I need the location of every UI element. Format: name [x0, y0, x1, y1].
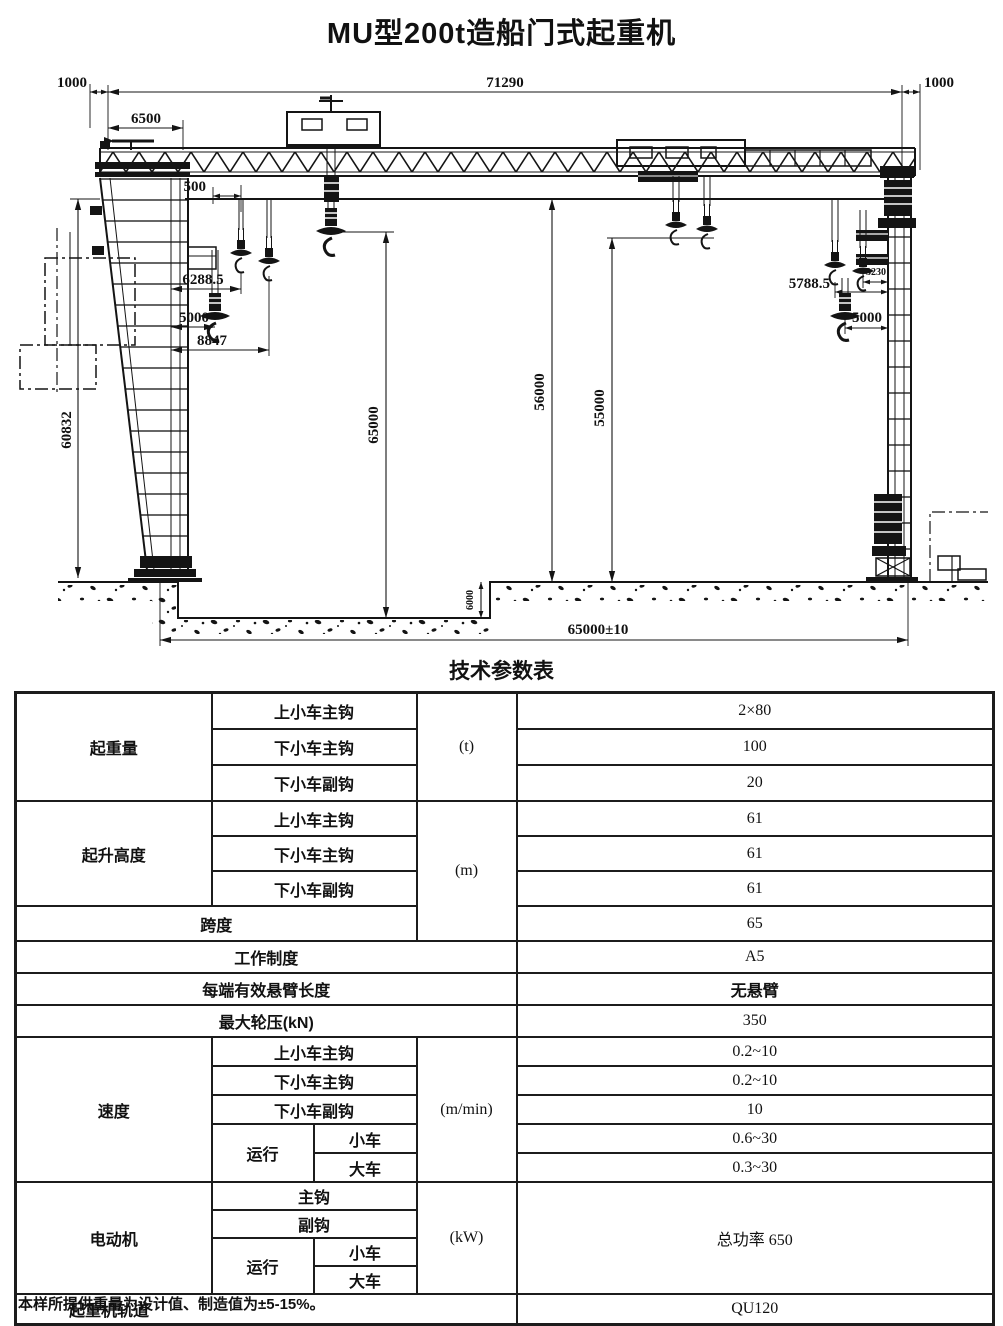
dim-6000: 6000: [465, 590, 476, 610]
cell-motor-unit: (kW): [417, 1182, 517, 1294]
hooks: [200, 176, 874, 340]
dim-3230: 3230: [866, 267, 886, 278]
dim-5000-left: 5000: [179, 310, 209, 326]
ground-and-pit: [58, 512, 988, 634]
leg-platform: [856, 230, 888, 241]
left-hook-2: [258, 236, 280, 281]
left-bogie: [140, 556, 192, 568]
cell-motor-sub-1: 副钩: [212, 1210, 417, 1238]
dim-6288-5: 6288.5: [182, 272, 223, 288]
dim-6500: 6500: [131, 111, 161, 127]
cell-wheelload-label: 最大轮压(kN): [16, 1005, 517, 1037]
cell-rail-value: QU120: [517, 1294, 994, 1325]
cell-height-sub-1: 下小车主钩: [212, 836, 417, 871]
dim-65000: 65000: [366, 406, 382, 444]
cell-speed-travel-value-0: 0.6~30: [517, 1124, 994, 1153]
cell-capacity-sub-2: 下小车副钩: [212, 765, 417, 801]
cell-capacity-label: 起重量: [16, 693, 212, 802]
cell-capacity-value-0: 2×80: [517, 693, 994, 730]
cell-duty-value: A5: [517, 941, 994, 973]
cell-speed-value-1: 0.2~10: [517, 1066, 994, 1095]
upper-trolley: [287, 95, 380, 202]
specs-table: 起重量 上小车主钩 (t) 2×80 下小车主钩 100 下小车副钩 20 起升…: [14, 691, 995, 1326]
footnote: 本样所提供重量为设计值、制造值为±5-15%。: [18, 1293, 325, 1314]
crane-elevation-drawing: 71290 1000 1000 6500 500 6288.5 5000 884…: [0, 0, 1003, 660]
cell-motor-sub-0: 主钩: [212, 1182, 417, 1210]
upper-trolley-main-hook: [316, 200, 346, 255]
cell-motor-travel-sub-0: 小车: [314, 1238, 417, 1266]
dim-500: 500: [184, 179, 207, 195]
cell-speed-sub-1: 下小车主钩: [212, 1066, 417, 1095]
cell-capacity-sub-1: 下小车主钩: [212, 729, 417, 765]
dim-1000-left: 1000: [57, 75, 87, 91]
dim-5788-5: 5788.5: [789, 276, 830, 292]
mid-hook-2: [696, 204, 718, 249]
dim-8847: 8847: [197, 333, 228, 349]
cell-speed-unit: (m/min): [417, 1037, 517, 1182]
cell-span-label: 跨度: [16, 906, 417, 941]
left-leg: [90, 162, 216, 582]
dim-5000-right: 5000: [852, 310, 882, 326]
cell-duty-label: 工作制度: [16, 941, 517, 973]
cell-speed-travel-label: 运行: [212, 1124, 314, 1182]
cell-motor-travel-label: 运行: [212, 1238, 314, 1294]
dim-56000: 56000: [532, 373, 548, 411]
trolley-window: [302, 119, 322, 130]
cell-height-value-2: 61: [517, 871, 994, 906]
cell-height-sub-0: 上小车主钩: [212, 801, 417, 836]
leg-bracket: [90, 206, 102, 215]
right-leg: [856, 166, 918, 582]
cell-cantilever-label: 每端有效悬臂长度: [16, 973, 517, 1005]
cell-capacity-value-2: 20: [517, 765, 994, 801]
cell-height-value-1: 61: [517, 836, 994, 871]
quay-edge: [930, 512, 988, 582]
table-title: 技术参数表: [0, 655, 1003, 685]
cell-capacity-sub-0: 上小车主钩: [212, 693, 417, 730]
leg-bracket: [92, 246, 104, 255]
cell-speed-label: 速度: [16, 1037, 212, 1182]
dim-65000-10: 65000±10: [568, 622, 629, 638]
cell-motor-value: 总功率 650: [517, 1182, 994, 1294]
cell-height-unit: (m): [417, 801, 517, 941]
cell-span-value: 65: [517, 906, 994, 941]
cell-height-label: 起升高度: [16, 801, 212, 906]
cell-speed-sub-0: 上小车主钩: [212, 1037, 417, 1066]
cell-speed-travel-sub-1: 大车: [314, 1153, 417, 1182]
cell-speed-value-0: 0.2~10: [517, 1037, 994, 1066]
dim-60832: 60832: [59, 411, 75, 449]
cell-height-sub-2: 下小车副钩: [212, 871, 417, 906]
cell-wheelload-value: 350: [517, 1005, 994, 1037]
dim-1000-right: 1000: [924, 75, 954, 91]
left-hook-1: [230, 228, 252, 273]
cell-speed-sub-2: 下小车副钩: [212, 1095, 417, 1124]
cell-capacity-unit: (t): [417, 693, 517, 802]
dim-55000: 55000: [592, 389, 608, 427]
truss-girder: [100, 137, 915, 199]
cell-cantilever-value: 无悬臂: [517, 973, 994, 1005]
cell-capacity-value-1: 100: [517, 729, 994, 765]
cell-speed-value-2: 10: [517, 1095, 994, 1124]
cell-motor-label: 电动机: [16, 1182, 212, 1294]
cell-height-value-0: 61: [517, 801, 994, 836]
trolley-window: [347, 119, 367, 130]
cell-motor-travel-sub-1: 大车: [314, 1266, 417, 1294]
cell-speed-travel-sub-0: 小车: [314, 1124, 417, 1153]
dim-71290: 71290: [486, 75, 524, 91]
cell-speed-travel-value-1: 0.3~30: [517, 1153, 994, 1182]
hoist-block: [324, 176, 339, 202]
